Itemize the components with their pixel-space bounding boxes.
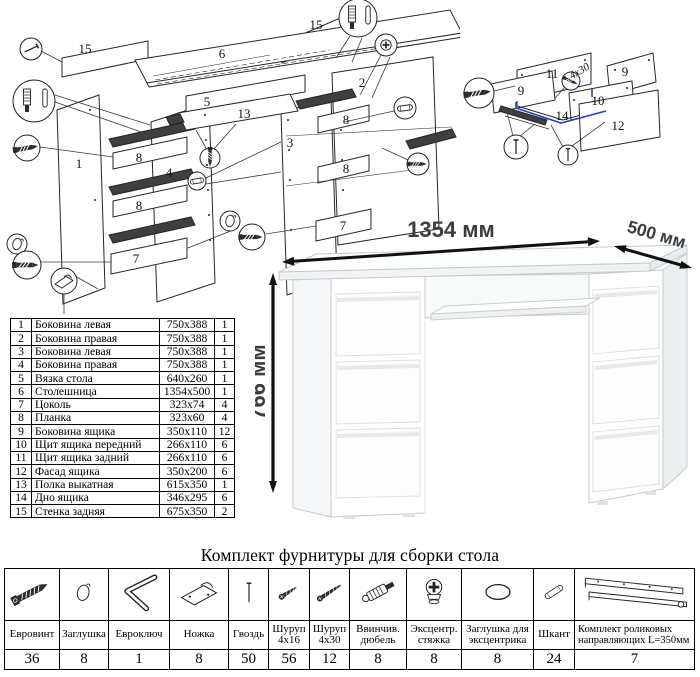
hardware-icon-cell: [269, 569, 310, 621]
part-size: 750x388: [160, 319, 215, 332]
hardware-icons-row: [5, 569, 695, 621]
parts-row: 5Вязка стола640x2601: [11, 372, 235, 385]
part-qty: 12: [215, 425, 235, 438]
hardware-name: Шуруп 4x16: [269, 621, 310, 650]
hardware-name: Эксцентр. стяжка: [407, 621, 462, 650]
part-qty: 4: [215, 398, 235, 411]
part-size: 266x110: [160, 438, 215, 451]
part-num: 12: [11, 465, 32, 478]
parts-row: 15Стенка задняя675x3502: [11, 505, 235, 518]
hardware-icon-cell: [534, 569, 575, 621]
part-num: 10: [11, 438, 32, 451]
euro-screw-icon: [7, 569, 57, 615]
part-label-9: 9: [622, 64, 629, 79]
hardware-icon-cell: [310, 569, 350, 621]
wood-dowel-icon: [535, 569, 573, 615]
part-num: 15: [11, 505, 32, 518]
part-size: 266x110: [160, 451, 215, 464]
part-num: 2: [11, 332, 32, 345]
hardware-qty: 50: [229, 650, 269, 670]
hardware-name: Евровинт: [5, 621, 60, 650]
part-name: Полка выкатная: [32, 478, 160, 491]
part-label-6: 6: [219, 46, 226, 61]
parts-row: 14Дно ящика346x2956: [11, 491, 235, 504]
part-label-7: 7: [133, 251, 140, 266]
part-num: 14: [11, 491, 32, 504]
part-size: 1354x500: [160, 385, 215, 398]
hardware-qty: 8: [462, 650, 534, 670]
parts-row: 3Боковина левая750x3881: [11, 345, 235, 358]
part-name: Боковина левая: [32, 345, 160, 358]
screw-in-dowel-icon: [352, 569, 404, 615]
hardware-icon-cell: [60, 569, 109, 621]
part-qty: 1: [215, 372, 235, 385]
part-label-11: 11: [546, 66, 559, 81]
part-qty: 4: [215, 412, 235, 425]
hardware-qty: 8: [60, 650, 109, 670]
cam-cap-icon: [471, 569, 525, 615]
part-qty: 1: [215, 358, 235, 371]
parts-row: 8Планка323x604: [11, 412, 235, 425]
part-label-3: 3: [287, 135, 294, 150]
hardware-icon-cell: [350, 569, 407, 621]
part-qty: 1: [215, 345, 235, 358]
wood-dowel-icon: [43, 89, 47, 107]
part-num: 13: [11, 478, 32, 491]
furniture-foot-icon: [172, 569, 226, 615]
part-size: 346x295: [160, 491, 215, 504]
part-label-15: 15: [79, 41, 92, 56]
part-size: 323x74: [160, 398, 215, 411]
cam-lock-icon: [381, 40, 391, 50]
part-size: 350x110: [160, 425, 215, 438]
part-num: 4: [11, 358, 32, 371]
hardware-name: Евроключ: [109, 621, 170, 650]
part-label-2: 2: [359, 75, 366, 90]
furniture-cap-icon: [62, 569, 106, 615]
width-dimension-label: 1354 мм: [407, 217, 495, 242]
hardware-icon-cell: [575, 569, 695, 621]
part-name: Боковина левая: [32, 319, 160, 332]
hardware-icon-cell: [109, 569, 170, 621]
part-size: 323x60: [160, 412, 215, 425]
desk-dimension-view: 1354 мм 500 мм 766 мм: [255, 215, 700, 547]
part-name: Стенка задняя: [32, 505, 160, 518]
part-label-12: 12: [612, 118, 625, 133]
part-size: 750x388: [160, 358, 215, 371]
hardware-name: Заглушка для эксцентрика: [462, 621, 534, 650]
part-name: Дно ящика: [32, 491, 160, 504]
hardware-qty: 8: [170, 650, 229, 670]
panel-back-wall-left: [62, 41, 148, 77]
desk-illustration: [279, 245, 687, 519]
part-qty: 6: [215, 491, 235, 504]
part-label-5: 5: [204, 94, 211, 109]
hardware-name: Ввинчив. дюбель: [350, 621, 407, 650]
hardware-qty: 36: [5, 650, 60, 670]
cam-lock-icon: [412, 569, 456, 615]
desk-drawers-right: [593, 286, 659, 492]
part-size: 615x350: [160, 478, 215, 491]
part-label-8: 8: [343, 112, 350, 127]
hardware-icon-cell: [407, 569, 462, 621]
part-label-8: 8: [343, 161, 350, 176]
hardware-name: Комплект роликовых направляющих L=350мм: [575, 621, 695, 650]
hardware-table: Евровинт Заглушка Евроключ Ножка Гвоздь …: [4, 568, 695, 670]
hardware-qty: 7: [575, 650, 695, 670]
hardware-qty-row: 36 8 1 8 50 56 12 8 8 8 24 7: [5, 650, 695, 670]
parts-row: 11Щит ящика задний266x1106: [11, 451, 235, 464]
hex-key-icon: [111, 569, 167, 615]
part-name: Боковина правая: [32, 332, 160, 345]
parts-row: 9Боковина ящика350x11012: [11, 425, 235, 438]
part-name: Боковина ящика: [32, 425, 160, 438]
parts-table: 1Боковина левая750x3881 2Боковина правая…: [10, 318, 235, 518]
hardware-name: Ножка: [170, 621, 229, 650]
part-name: Планка: [32, 412, 160, 425]
height-dimension-label: 766 мм: [255, 344, 270, 419]
hardware-name: Гвоздь: [229, 621, 269, 650]
part-qty: 1: [215, 385, 235, 398]
hardware-qty: 12: [310, 650, 350, 670]
part-label-14: 14: [556, 108, 570, 123]
part-qty: 1: [215, 478, 235, 491]
part-name: Щит ящика передний: [32, 438, 160, 451]
part-num: 8: [11, 412, 32, 425]
part-name: Фасад ящика: [32, 465, 160, 478]
desk-right-side: [663, 253, 687, 489]
part-name: Вязка стола: [32, 372, 160, 385]
part-qty: 1: [215, 319, 235, 332]
part-size: 750x388: [160, 345, 215, 358]
hardware-icon-cell: [462, 569, 534, 621]
hardware-qty: 56: [269, 650, 310, 670]
part-label-10: 10: [592, 93, 605, 108]
part-num: 6: [11, 385, 32, 398]
part-size: 640x260: [160, 372, 215, 385]
hardware-icon-cell: [5, 569, 60, 621]
part-label-15: 15: [310, 17, 323, 32]
parts-row: 4Боковина правая750x3881: [11, 358, 235, 371]
part-qty: 2: [215, 505, 235, 518]
part-label-9: 9: [518, 83, 525, 98]
wood-dowel-icon: [366, 6, 370, 24]
parts-row: 6Столешница1354x5001: [11, 385, 235, 398]
assembly-instruction-sheet: 15 6 15 5 13 2 3 1 4 8 8 7 8 8 7: [0, 0, 700, 677]
part-name: Цоколь: [32, 398, 160, 411]
hardware-qty: 8: [407, 650, 462, 670]
desk-drawers-left: [336, 292, 420, 498]
hardware-name: Заглушка: [60, 621, 109, 650]
parts-row: 7Цоколь323x744: [11, 398, 235, 411]
part-name: Щит ящика задний: [32, 451, 160, 464]
desk-left-side: [293, 278, 331, 517]
parts-row: 13Полка выкатная615x3501: [11, 478, 235, 491]
part-size: 675x350: [160, 505, 215, 518]
part-num: 7: [11, 398, 32, 411]
hardware-qty: 1: [109, 650, 170, 670]
part-qty: 6: [215, 438, 235, 451]
nail-icon: [232, 569, 266, 615]
part-num: 11: [11, 451, 32, 464]
part-label-1: 1: [76, 156, 83, 171]
parts-row: 2Боковина правая750x3881: [11, 332, 235, 345]
parts-row: 12Фасад ящика350x2006: [11, 465, 235, 478]
hardware-name: Шкант: [534, 621, 575, 650]
part-num: 3: [11, 345, 32, 358]
part-qty: 6: [215, 451, 235, 464]
parts-row: 10Щит ящика передний266x1106: [11, 438, 235, 451]
part-num: 5: [11, 372, 32, 385]
hardware-icon-cell: [170, 569, 229, 621]
part-label-8: 8: [136, 198, 143, 213]
part-name: Столешница: [32, 385, 160, 398]
screw-4x16-icon: [271, 569, 307, 615]
part-size: 750x388: [160, 332, 215, 345]
hardware-kit-title: Комплект фурнитуры для сборки стола: [0, 545, 700, 566]
drawer-exploded-diagram: 11 9 9 10 14 12 4x30: [455, 40, 700, 215]
part-qty: 6: [215, 465, 235, 478]
part-label-4: 4: [166, 165, 173, 180]
hardware-qty: 8: [350, 650, 407, 670]
part-label-8: 8: [136, 150, 143, 165]
hardware-names-row: Евровинт Заглушка Евроключ Ножка Гвоздь …: [5, 621, 695, 650]
part-num: 1: [11, 319, 32, 332]
part-name: Боковина правая: [32, 358, 160, 371]
part-size: 350x200: [160, 465, 215, 478]
screw-4x30-icon: [312, 569, 348, 615]
part-num: 9: [11, 425, 32, 438]
hardware-qty: 24: [534, 650, 575, 670]
hardware-name: Шуруп 4x30: [310, 621, 350, 650]
drawer-slides-icon: [577, 569, 693, 615]
part-qty: 1: [215, 332, 235, 345]
part-label-13: 13: [238, 106, 251, 121]
parts-row: 1Боковина левая750x3881: [11, 319, 235, 332]
hardware-icon-cell: [229, 569, 269, 621]
